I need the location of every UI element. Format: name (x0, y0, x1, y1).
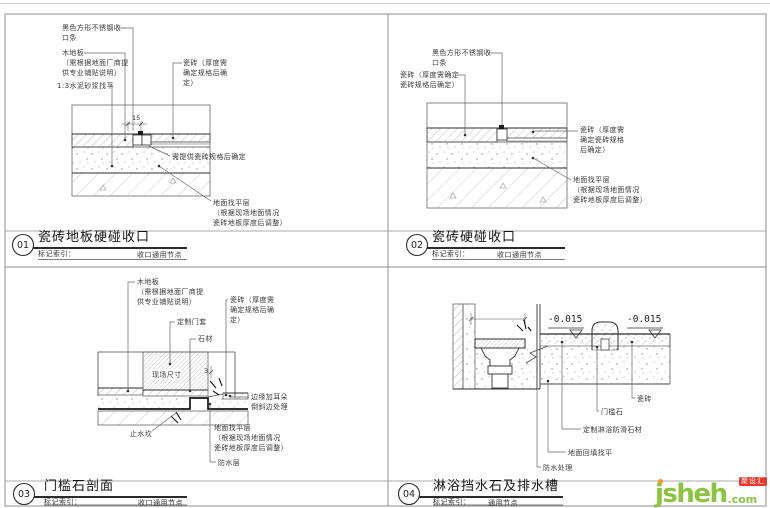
label-door-frame: 定制门套 (177, 317, 207, 327)
label-line: 口条 (62, 33, 121, 43)
label-line: 木地板 (137, 277, 204, 287)
label-line: （需根据地面厂商提 (62, 58, 129, 68)
index-value-02: 收口通用节点 (497, 251, 542, 259)
detail-title-02: 瓷砖硬碰收口 (432, 231, 516, 245)
label-line: 瓷砖（厚度需 (183, 58, 227, 68)
label-tile: 瓷砖 (637, 394, 652, 404)
elevation-left: -0.015 (548, 314, 582, 325)
jsheh-logo: jsheh.com 聚设汇 (655, 476, 768, 506)
label-line: 黑色方形不锈钢收 (432, 48, 491, 58)
label-line: 地面找平层 (573, 175, 647, 185)
label-line: 定） (183, 78, 227, 88)
label-tile: 瓷砖（厚度需 确定规格后确 定） (230, 295, 274, 325)
label-tile: 瓷砖（厚度需 确定规格后确 定） (183, 58, 227, 88)
label-line: 后确定） (580, 145, 624, 155)
label-tile-left: 瓷砖（厚度需确定 瓷砖规格后确定） (400, 70, 459, 90)
label-line: 木地板 (62, 48, 129, 58)
index-value-01: 收口通用节点 (137, 251, 182, 259)
label-line: 供专业铺贴说明） (137, 297, 204, 307)
index-label-01: 标记索引： (38, 250, 76, 258)
label-steel-strip: 黑色方形不锈钢收 口条 (432, 48, 491, 68)
label-edge-treatment: 边缘加耳朵 倒斜边处理 (251, 392, 288, 412)
label-steel-strip: 黑色方形不锈钢收 口条 (62, 23, 121, 43)
label-line: 瓷砖地板厚度后调整） (573, 195, 647, 205)
label-site-dimension: 现场尺寸 (152, 370, 182, 380)
label-wood-floor: 木地板 （需根据地面厂商提 供专业铺贴说明） (62, 48, 129, 78)
label-line: 供专业铺贴说明） (62, 68, 129, 78)
label-line: 定） (230, 315, 274, 325)
label-waterstop-curb: 止水坎 (130, 429, 152, 439)
detail-number-03: 03 (13, 489, 35, 500)
detail-number-01: 01 (12, 240, 34, 251)
dimension-3: 3 (204, 367, 208, 375)
label-line: 地面找平层 (213, 198, 287, 208)
detail-title-04: 淋浴挡水石及排水槽 (433, 480, 559, 494)
dimension-15: 15 (132, 114, 140, 122)
label-threshold-stone: 门槛石 (601, 407, 623, 417)
label-line: 瓷砖地板厚度后调整） (213, 218, 287, 228)
detail-number-04: 04 (398, 489, 420, 500)
label-line: 瓷砖规格后确定） (400, 80, 459, 90)
label-line: 口条 (432, 58, 491, 68)
label-line: 瓷砖（厚度需 (230, 295, 274, 305)
label-line: 地面找平层 (214, 423, 288, 433)
drawing-sheet: 黑色方形不锈钢收 口条 木地板 （需根据地面厂商提 供专业铺贴说明） 1:3水泥… (0, 0, 770, 508)
label-line: 倒斜边处理 (251, 402, 288, 412)
label-line: 瓷砖地板厚度后调整） (214, 443, 288, 453)
index-label-02: 标记索引： (432, 250, 470, 258)
label-line: 黑色方形不锈钢收 (62, 23, 121, 33)
label-waterproofing: 防水处理 (543, 463, 573, 473)
detail-title-03: 门槛石剖面 (44, 480, 114, 494)
logo-dot-icon (658, 479, 663, 484)
label-line: （根据现场地面情况 (213, 208, 287, 218)
index-value-04: 通用节点 (488, 499, 518, 507)
label-line: （根据现场地面情况 (573, 185, 647, 195)
sheet-frame (0, 4, 770, 507)
logo-tld: .com (728, 493, 758, 506)
label-leveling: 地面找平层 （根据现场地面情况 瓷砖地板厚度后调整） (214, 423, 288, 453)
label-mortar: 1:3水泥砂浆找平 (57, 81, 114, 91)
label-line: （根据现场地面情况 (214, 433, 288, 443)
label-tile-right: 瓷砖（厚度需 确定瓷砖规格 后确定） (580, 125, 624, 155)
label-waterproof-layer: 防水层 (218, 458, 240, 468)
index-label-04: 标记索引： (433, 498, 471, 506)
label-line: （需根据地面厂商提 (137, 287, 204, 297)
label-leveling: 地面找平层 （根据现场地面情况 瓷砖地板厚度后调整） (213, 198, 287, 228)
logo-badge: 聚设汇 (739, 477, 767, 486)
label-line: 边缘加耳朵 (251, 392, 288, 402)
label-line: 瓷砖（厚度需 (580, 125, 624, 135)
elevation-right: -0.015 (627, 314, 661, 325)
panel4-drawing (453, 304, 670, 467)
label-backfill-leveling: 地面回填找平 (568, 448, 612, 458)
label-line: 确定规格后确 (230, 305, 274, 315)
label-tile-spec: 需提供瓷砖规格后确定 (172, 152, 246, 162)
label-line: 瓷砖（厚度需确定 (400, 70, 459, 80)
index-value-03: 收口通用节点 (138, 499, 183, 507)
detail-number-02: 02 (406, 240, 428, 251)
label-leveling: 地面找平层 （根据现场地面情况 瓷砖地板厚度后调整） (573, 175, 647, 205)
index-label-03: 标记索引： (44, 498, 82, 506)
label-shower-stone: 定制淋浴防滑石材 (583, 425, 642, 435)
logo-wordmark: jsheh (655, 482, 727, 506)
label-line: 确定瓷砖规格 (580, 135, 624, 145)
detail-title-01: 瓷砖地板硬碰收口 (38, 231, 150, 245)
label-line: 确定规格后确 (183, 68, 227, 78)
label-wood-floor: 木地板 （需根据地面厂商提 供专业铺贴说明） (137, 277, 204, 307)
label-stone: 石材 (198, 334, 213, 344)
